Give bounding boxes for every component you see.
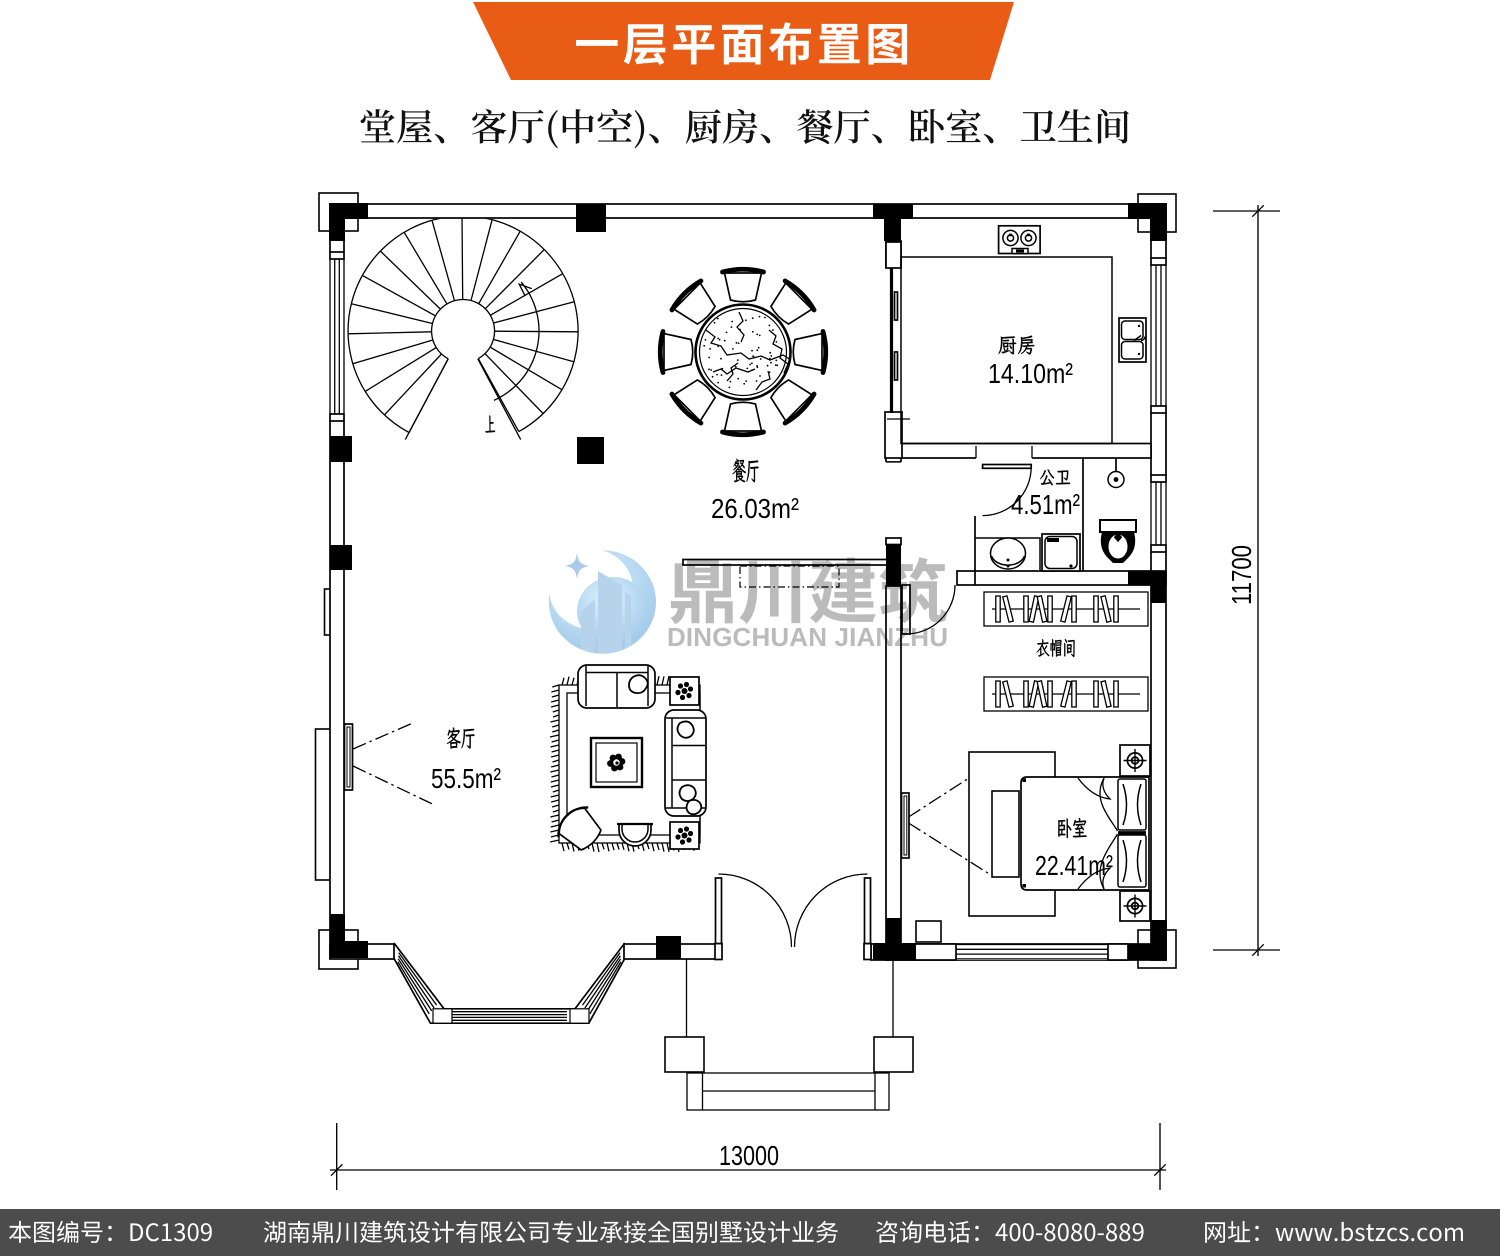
svg-text:55.5m²: 55.5m²	[431, 763, 501, 794]
svg-text:14.10m²: 14.10m²	[988, 358, 1073, 389]
svg-text:13000: 13000	[719, 1140, 779, 1171]
svg-text:DINGCHUAN JIANZHU: DINGCHUAN JIANZHU	[667, 622, 950, 652]
svg-text:22.41m²: 22.41m²	[1035, 850, 1113, 881]
svg-text:26.03m²: 26.03m²	[711, 493, 799, 524]
svg-text:11700: 11700	[1226, 545, 1257, 605]
svg-text:4.51m²: 4.51m²	[1011, 489, 1080, 520]
